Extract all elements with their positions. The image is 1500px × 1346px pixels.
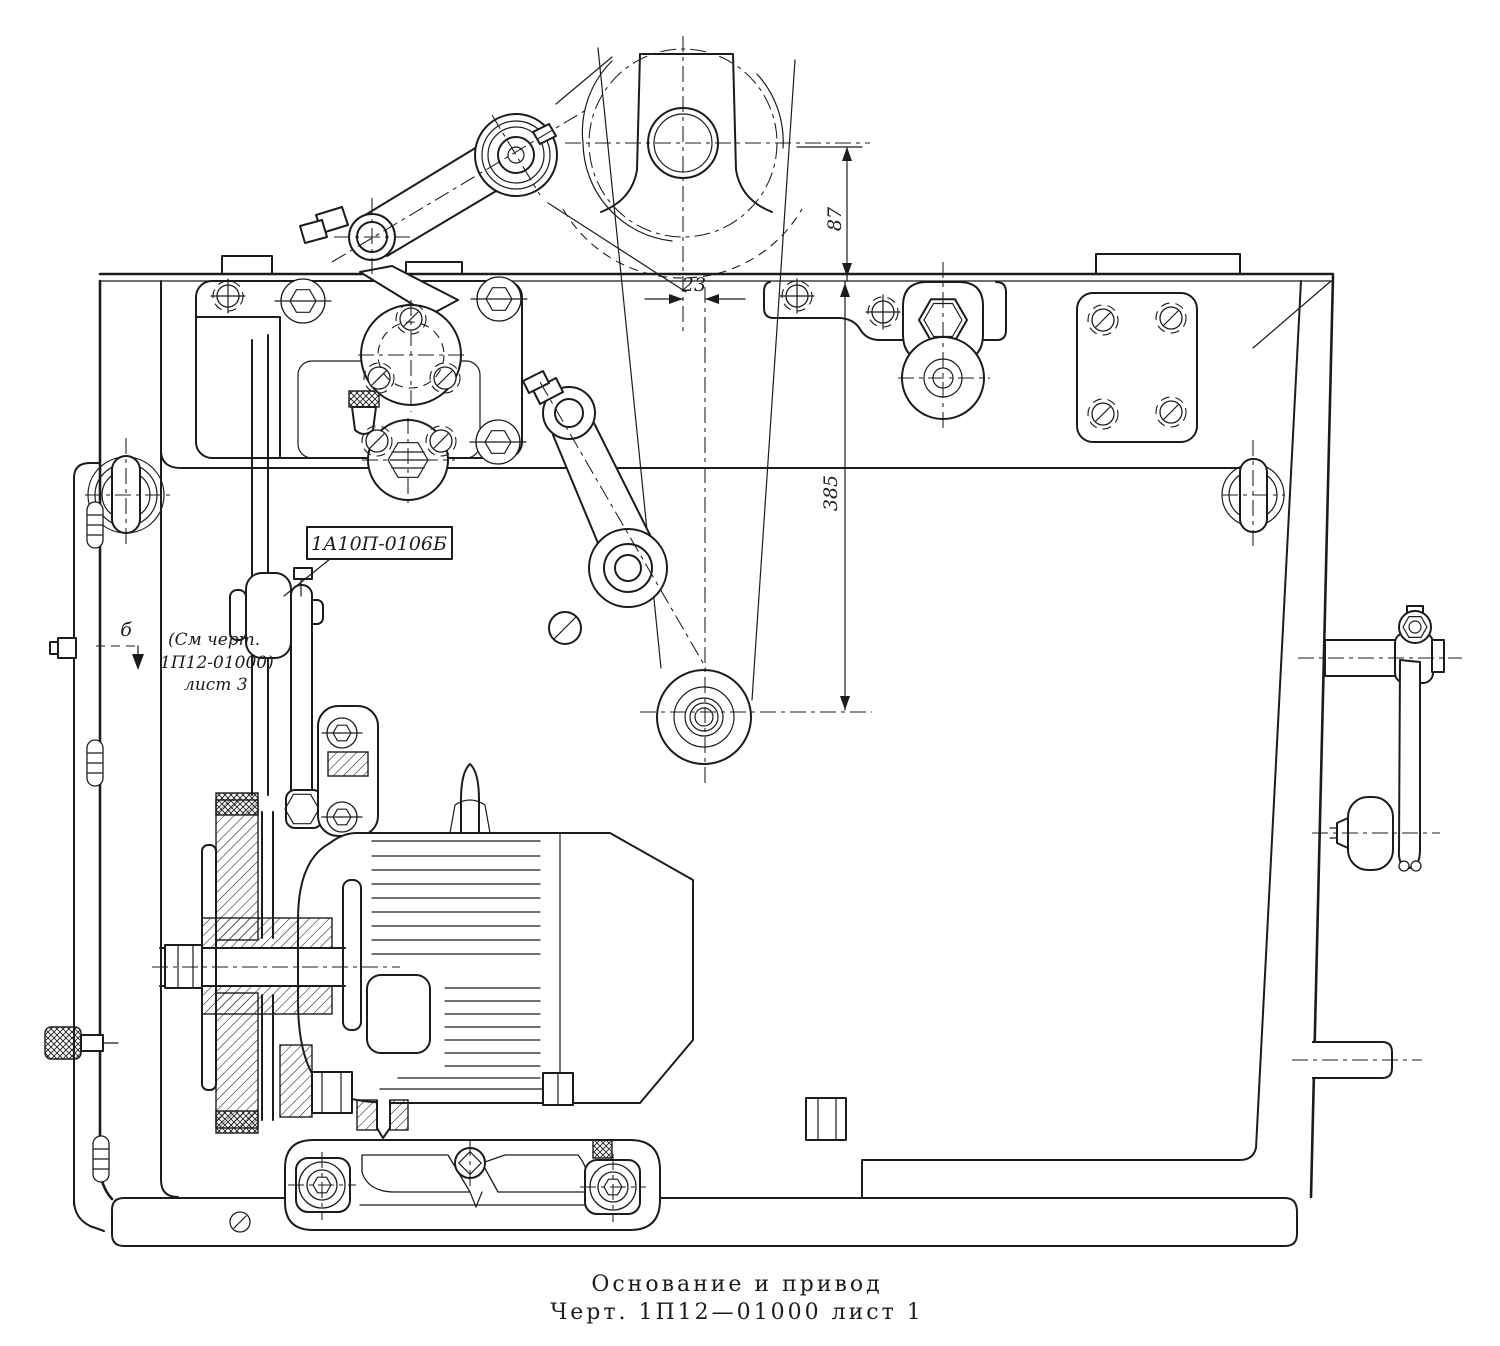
knurled-grip-middle	[87, 740, 103, 786]
rod-hex-nut[interactable]	[285, 790, 322, 828]
right-side-mechanism	[1222, 459, 1444, 1078]
top-tab-right	[1096, 254, 1240, 274]
clamp-jaw-right	[482, 1155, 587, 1192]
hub-lower	[202, 986, 332, 1014]
top-tab-left	[222, 256, 272, 274]
hub-upper	[202, 918, 332, 948]
machine-base-drive-drawing: 23 87 385 б 1А10П-0106Б (См черт. 1П12-0…	[0, 0, 1500, 1346]
dim-23: 23	[645, 274, 745, 304]
left-side-panel	[45, 456, 164, 1231]
dim-385: 385	[820, 281, 850, 710]
rocker-lever	[523, 371, 667, 644]
see-sheet-note: (См черт. 1П12-01000) лист 3	[160, 630, 274, 695]
caption-line-2: Черт. 1П12—01000 лист 1	[550, 1300, 924, 1325]
tension-rod[interactable]	[291, 585, 312, 815]
pivot-bolt	[300, 207, 348, 243]
lifting-eye	[450, 764, 490, 833]
slide-clamp-bolt	[357, 1100, 408, 1138]
hex-bolt-lever[interactable]	[1399, 606, 1431, 643]
view-arrow-label: б	[120, 619, 132, 641]
title-caption: Основание и привод Черт. 1П12—01000 лист…	[550, 1272, 924, 1325]
top-right-bracket	[764, 279, 1197, 442]
note-line-2: 1П12-01000)	[160, 653, 274, 673]
swing-lever[interactable]	[1399, 660, 1421, 871]
dim-385-value: 385	[820, 475, 842, 511]
rocker-pulley	[589, 529, 667, 607]
dim-87: 87	[797, 147, 862, 281]
lower-idler-pulley	[657, 670, 751, 764]
rear-clamp-bolt	[806, 1098, 846, 1140]
part-ref-label: 1А10П-0106Б	[311, 533, 447, 555]
foot-screw	[230, 1212, 250, 1232]
tension-lever-assembly	[300, 57, 686, 315]
note-line-1: (См черт.	[168, 630, 260, 650]
drawing-sheet: 23 87 385 б 1А10П-0106Б (См черт. 1П12-0…	[0, 0, 1500, 1346]
dim-87-value: 87	[824, 206, 846, 231]
note-line-3: лист 3	[184, 675, 248, 695]
idler-pulley-top-left	[475, 114, 557, 196]
clamp-knob[interactable]	[45, 1027, 118, 1059]
view-arrow: б	[96, 619, 144, 670]
caption-line-1: Основание и привод	[591, 1272, 882, 1297]
small-stud-left	[50, 638, 76, 658]
bracket-screw-1	[780, 279, 814, 313]
knurled-grip-lower	[93, 1136, 109, 1182]
knurled-grip-upper	[87, 502, 103, 548]
slotted-plug	[549, 612, 581, 644]
top-tab-mid	[406, 262, 462, 274]
bracket-screw-2	[866, 295, 900, 329]
tension-mount-plate	[196, 277, 527, 464]
part-ref-callout[interactable]: 1А10П-0106Б	[284, 527, 452, 596]
belt-guard-strip	[343, 880, 361, 1030]
motor-foot-rear	[543, 1073, 573, 1105]
anchor-bracket	[318, 706, 378, 836]
belt-edge-a	[556, 57, 612, 104]
dim-23-value: 23	[681, 274, 706, 296]
terminal-box	[367, 975, 430, 1053]
